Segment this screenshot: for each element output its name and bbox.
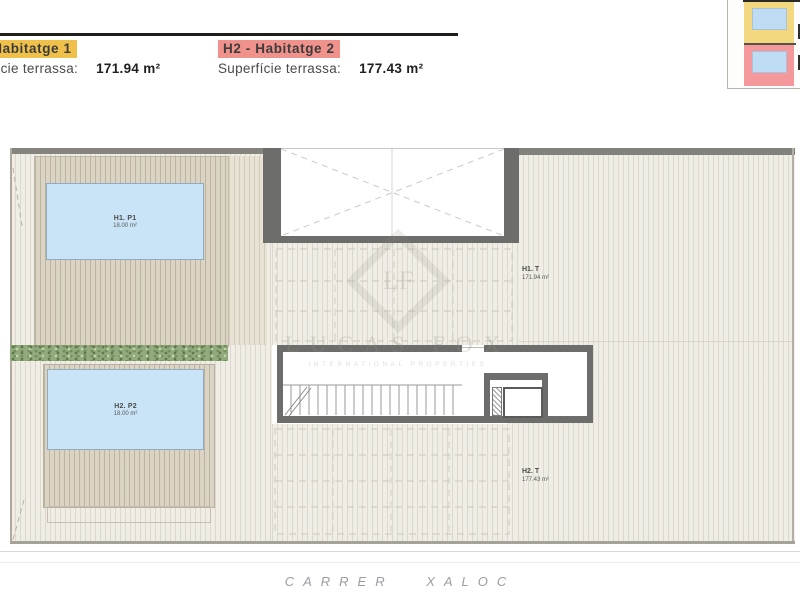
elevator-shaft-left-wall	[484, 373, 490, 416]
void-cross-marks	[281, 149, 504, 236]
pool-1-area: 18.00 m²	[113, 223, 137, 229]
terrace-1-area: 171.94 m²	[522, 275, 549, 283]
deck-step-frame	[47, 506, 211, 523]
left-parcel-top-wall	[10, 148, 272, 154]
void-right-wall	[504, 148, 519, 243]
pool-2-name: H2. P2	[114, 403, 137, 410]
right-parcel-top-wall	[516, 148, 795, 155]
boundary-dashes	[10, 140, 40, 546]
legend-1-area-value: 171.94 m²	[96, 61, 160, 76]
pool-1-name: H1. P1	[114, 215, 137, 222]
minimap-habitatge-1-block	[744, 2, 794, 43]
legend-2-row: Superfície terrassa: 177.43 m²	[218, 61, 423, 76]
legend-2-title: H2 - Habitatge 2	[218, 40, 340, 58]
watermark-tagline: INTERNATIONAL PROPERTIES	[278, 361, 518, 368]
deck-side-strip	[228, 156, 267, 345]
terrace-2-area: 177.43 m²	[522, 477, 549, 485]
legend-1-title: H1 - Habitatge 1	[0, 40, 77, 58]
legend-2-area-label: Superfície terrassa:	[218, 61, 341, 76]
pool-2: H2. P2 18.00 m²	[47, 369, 204, 450]
void-opening	[281, 149, 504, 236]
street-line	[0, 551, 800, 552]
minimap-pool-2	[752, 51, 787, 73]
right-parcel-boundary	[792, 148, 794, 543]
legend-2-area-value: 177.43 m²	[359, 61, 423, 76]
floorplan-page: H1 - Habitatge 1 Superfície terrassa: 17…	[0, 0, 800, 600]
street-name: CARRER XALOC	[0, 574, 800, 589]
minimap	[727, 0, 800, 89]
elevator-cab	[503, 387, 543, 418]
header-rule	[0, 33, 458, 36]
terrace-1-name: H1. T	[522, 266, 549, 275]
street-line	[0, 562, 800, 563]
terrace-2-label: H2. T 177.43 m²	[522, 468, 549, 484]
legend-1-row: Superfície terrassa: 171.94 m²	[0, 61, 160, 76]
watermark-diamond-icon: LF	[346, 229, 451, 334]
stair-block-bottom-wall	[277, 416, 593, 423]
pool-1: H1. P1 18.00 m²	[46, 183, 204, 260]
watermark-name: LUCAS FOX	[278, 332, 518, 358]
terrace-division-line	[516, 341, 793, 342]
minimap-habitatge-2-block	[744, 45, 794, 86]
minimap-pool-1	[752, 8, 787, 30]
stair-block-right-wall	[587, 345, 593, 423]
terrace-2-name: H2. T	[522, 468, 549, 477]
legend-1-area-label: Superfície terrassa:	[0, 61, 78, 76]
floor-plan: H1. P1 18.00 m² H2. P2 18.00 m²	[10, 140, 795, 546]
terrace-1-label: H1. T 171.94 m²	[522, 266, 549, 282]
plan-bottom-edge	[10, 541, 795, 544]
void-left-wall	[263, 148, 281, 243]
elevator-shaft-top-wall	[484, 373, 548, 380]
hedge-strip	[10, 345, 228, 361]
elevator-door-hatch	[492, 387, 502, 416]
legend-habitatge-1: H1 - Habitatge 1 Superfície terrassa: 17…	[0, 40, 160, 76]
watermark-monogram: LF	[383, 266, 413, 296]
center-terrace-lower	[272, 424, 515, 543]
void-top-line	[281, 148, 504, 149]
pergola-grid-lower	[272, 424, 515, 543]
watermark: LF LUCAS FOX INTERNATIONAL PROPERTIES	[278, 244, 518, 368]
legend-habitatge-2: H2 - Habitatge 2 Superfície terrassa: 17…	[218, 40, 423, 76]
pool-2-area: 18.00 m²	[114, 411, 138, 417]
